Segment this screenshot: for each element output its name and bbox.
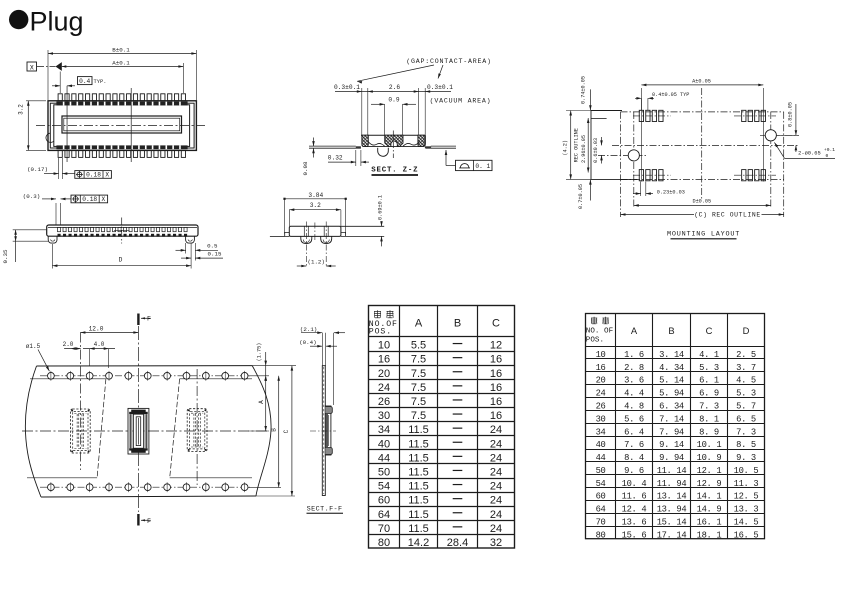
svg-text:10: 10 xyxy=(596,350,606,360)
svg-text:14. 1: 14. 1 xyxy=(697,492,722,502)
svg-text:(VACUUM AREA): (VACUUM AREA) xyxy=(430,98,492,105)
svg-text:6. 5: 6. 5 xyxy=(736,414,756,424)
svg-text:B±0.1: B±0.1 xyxy=(112,46,130,53)
svg-text:7.5: 7.5 xyxy=(411,368,426,380)
svg-text:5. 94: 5. 94 xyxy=(659,389,684,399)
svg-text:10. 1: 10. 1 xyxy=(697,440,722,450)
svg-text:34: 34 xyxy=(596,427,606,437)
svg-text:6. 34: 6. 34 xyxy=(659,402,684,412)
svg-text:24: 24 xyxy=(490,424,502,436)
svg-text:20: 20 xyxy=(378,368,390,380)
svg-text:(0.4): (0.4) xyxy=(299,339,316,346)
svg-text:0. 1: 0. 1 xyxy=(475,163,490,170)
svg-text:0.4±0.05 TYP: 0.4±0.05 TYP xyxy=(652,92,689,98)
svg-text:A±0.05: A±0.05 xyxy=(692,79,711,85)
svg-text:64: 64 xyxy=(596,505,606,515)
svg-text:3.2: 3.2 xyxy=(310,202,321,209)
svg-text:X: X xyxy=(105,172,109,179)
svg-text:0.5: 0.5 xyxy=(207,243,218,250)
svg-text:24: 24 xyxy=(596,389,606,399)
svg-text:D±0.05: D±0.05 xyxy=(692,199,711,205)
svg-text:24: 24 xyxy=(490,481,502,493)
svg-text:28.4: 28.4 xyxy=(447,537,468,549)
svg-text:11. 14: 11. 14 xyxy=(657,466,687,476)
svg-text:A: A xyxy=(258,400,265,404)
svg-text:3. 6: 3. 6 xyxy=(624,376,644,386)
svg-text:SECT.F-F: SECT.F-F xyxy=(307,505,343,513)
svg-text:11.5: 11.5 xyxy=(408,438,429,450)
svg-text:(1.2): (1.2) xyxy=(307,258,324,265)
svg-text:11.5: 11.5 xyxy=(408,424,429,436)
svg-text:8. 9: 8. 9 xyxy=(699,427,719,437)
svg-text:60: 60 xyxy=(378,495,390,507)
svg-text:26: 26 xyxy=(596,402,606,412)
svg-text:16: 16 xyxy=(490,396,502,408)
svg-text:3. 14: 3. 14 xyxy=(659,350,684,360)
svg-text:0.23±0.03: 0.23±0.03 xyxy=(657,190,685,196)
svg-text:7. 14: 7. 14 xyxy=(659,414,684,424)
svg-text:0.4: 0.4 xyxy=(79,78,90,85)
svg-text:A: A xyxy=(415,317,423,329)
svg-text:0.18: 0.18 xyxy=(86,172,101,179)
svg-text:0.7±0.05: 0.7±0.05 xyxy=(578,184,584,209)
svg-text:6. 1: 6. 1 xyxy=(699,376,719,386)
svg-text:0.8±0.05: 0.8±0.05 xyxy=(787,102,793,127)
svg-text:10. 9: 10. 9 xyxy=(697,453,722,463)
svg-text:4.0: 4.0 xyxy=(94,341,105,348)
svg-text:24: 24 xyxy=(378,382,390,394)
svg-text:14. 9: 14. 9 xyxy=(697,505,722,515)
svg-text:11.5: 11.5 xyxy=(408,523,429,535)
svg-text:54: 54 xyxy=(596,479,606,489)
svg-text:16: 16 xyxy=(490,368,502,380)
svg-text:11.5: 11.5 xyxy=(408,452,429,464)
svg-text:5.5: 5.5 xyxy=(411,340,426,352)
svg-text:12. 4: 12. 4 xyxy=(622,505,647,515)
svg-text:34: 34 xyxy=(378,424,390,436)
svg-text:(C) REC OUTLINE: (C) REC OUTLINE xyxy=(694,212,761,219)
svg-text:NO. OF: NO. OF xyxy=(586,328,614,336)
svg-text:32: 32 xyxy=(490,537,502,549)
svg-text:16. 5: 16. 5 xyxy=(734,530,759,540)
svg-text:12: 12 xyxy=(490,340,502,352)
svg-text:16: 16 xyxy=(378,354,390,366)
svg-text:6. 9: 6. 9 xyxy=(699,389,719,399)
svg-text:13. 14: 13. 14 xyxy=(657,492,687,502)
svg-text:60: 60 xyxy=(596,492,606,502)
svg-text:4. 4: 4. 4 xyxy=(624,389,644,399)
svg-text:Plug: Plug xyxy=(30,6,84,36)
svg-text:2.6: 2.6 xyxy=(389,84,400,91)
svg-text:24: 24 xyxy=(490,523,502,535)
svg-text:C: C xyxy=(283,429,290,433)
svg-text:0.15: 0.15 xyxy=(208,251,222,258)
svg-text:7. 3: 7. 3 xyxy=(699,402,719,412)
svg-text:0.9: 0.9 xyxy=(388,97,399,104)
svg-text:11. 6: 11. 6 xyxy=(622,492,647,502)
svg-text:0.6±0.03: 0.6±0.03 xyxy=(593,138,599,163)
svg-text:2. 8: 2. 8 xyxy=(624,363,644,373)
svg-text:40: 40 xyxy=(378,438,390,450)
svg-text:50: 50 xyxy=(596,466,606,476)
svg-text:C: C xyxy=(492,317,500,329)
svg-text:54: 54 xyxy=(378,481,390,493)
svg-text:24: 24 xyxy=(490,509,502,521)
svg-text:(4.2): (4.2) xyxy=(562,140,568,156)
svg-text:70: 70 xyxy=(378,523,390,535)
svg-text:C: C xyxy=(706,325,713,336)
svg-text:15. 14: 15. 14 xyxy=(657,517,687,527)
svg-text:2-ø0.65: 2-ø0.65 xyxy=(798,151,821,157)
svg-text:13. 94: 13. 94 xyxy=(657,505,687,515)
svg-text:9. 6: 9. 6 xyxy=(624,466,644,476)
svg-text:70: 70 xyxy=(596,517,606,527)
svg-text:F: F xyxy=(147,316,151,323)
svg-text:7. 3: 7. 3 xyxy=(736,427,756,437)
svg-text:11.5: 11.5 xyxy=(408,495,429,507)
svg-text:8. 1: 8. 1 xyxy=(699,414,719,424)
svg-text:D: D xyxy=(743,325,750,336)
svg-text:10. 5: 10. 5 xyxy=(734,466,759,476)
svg-text:(1.75): (1.75) xyxy=(257,343,263,362)
svg-text:44: 44 xyxy=(596,453,606,463)
svg-text:16: 16 xyxy=(490,354,502,366)
svg-text:16: 16 xyxy=(596,363,606,373)
svg-text:0.08: 0.08 xyxy=(302,161,309,175)
svg-text:4. 5: 4. 5 xyxy=(736,376,756,386)
svg-text:TYP.: TYP. xyxy=(94,79,107,85)
svg-text:9. 94: 9. 94 xyxy=(659,453,684,463)
svg-text:16. 1: 16. 1 xyxy=(697,517,722,527)
svg-text:7. 94: 7. 94 xyxy=(659,427,684,437)
svg-text:(0.3): (0.3) xyxy=(23,193,40,200)
svg-text:5. 3: 5. 3 xyxy=(699,363,719,373)
svg-text:24: 24 xyxy=(490,452,502,464)
svg-text:A±0.1: A±0.1 xyxy=(112,59,130,66)
svg-text:7.5: 7.5 xyxy=(411,396,426,408)
svg-text:80: 80 xyxy=(596,530,606,540)
svg-text:14. 5: 14. 5 xyxy=(734,517,759,527)
svg-text:(GAP:CONTACT-AREA): (GAP:CONTACT-AREA) xyxy=(406,58,492,65)
svg-text:4. 34: 4. 34 xyxy=(659,363,684,373)
svg-text:B: B xyxy=(454,317,461,329)
svg-text:(2.1): (2.1) xyxy=(300,326,317,333)
svg-text:7. 6: 7. 6 xyxy=(624,440,644,450)
svg-text:(0.17): (0.17) xyxy=(27,166,48,173)
svg-text:12. 5: 12. 5 xyxy=(734,492,759,502)
svg-text:24: 24 xyxy=(490,438,502,450)
svg-text:50: 50 xyxy=(378,467,390,479)
svg-text:2. 5: 2. 5 xyxy=(736,350,756,360)
svg-text:7.5: 7.5 xyxy=(411,382,426,394)
svg-text:3. 7: 3. 7 xyxy=(736,363,756,373)
svg-text:44: 44 xyxy=(378,452,390,464)
svg-text:12. 9: 12. 9 xyxy=(697,479,722,489)
svg-text:3.2: 3.2 xyxy=(18,104,25,115)
svg-text:B: B xyxy=(270,428,277,432)
svg-text:11.5: 11.5 xyxy=(408,467,429,479)
svg-text:5. 3: 5. 3 xyxy=(736,389,756,399)
svg-text:8. 5: 8. 5 xyxy=(736,440,756,450)
svg-text:30: 30 xyxy=(378,410,390,422)
svg-text:15. 6: 15. 6 xyxy=(622,530,647,540)
svg-text:11. 3: 11. 3 xyxy=(734,479,759,489)
svg-text:9. 14: 9. 14 xyxy=(659,440,684,450)
svg-text:REC OUTLINE: REC OUTLINE xyxy=(574,128,580,162)
svg-text:0.3±0.1: 0.3±0.1 xyxy=(334,84,360,91)
svg-text:5. 14: 5. 14 xyxy=(659,376,684,386)
svg-text:10. 4: 10. 4 xyxy=(622,479,647,489)
svg-text:0.74±0.05: 0.74±0.05 xyxy=(581,76,587,104)
svg-text:24: 24 xyxy=(490,467,502,479)
svg-text:8. 4: 8. 4 xyxy=(624,453,644,463)
svg-text:40: 40 xyxy=(596,440,606,450)
svg-text:13. 3: 13. 3 xyxy=(734,505,759,515)
svg-text:16: 16 xyxy=(490,382,502,394)
svg-text:X: X xyxy=(30,64,34,71)
svg-text:12. 1: 12. 1 xyxy=(697,466,722,476)
svg-text:13. 6: 13. 6 xyxy=(622,517,647,527)
svg-text:64: 64 xyxy=(378,509,390,521)
svg-text:B: B xyxy=(668,325,674,336)
svg-text:20: 20 xyxy=(596,376,606,386)
svg-text:11.5: 11.5 xyxy=(408,481,429,493)
svg-text:7.5: 7.5 xyxy=(411,410,426,422)
svg-text:SECT. Z-Z: SECT. Z-Z xyxy=(371,167,418,175)
svg-text:24: 24 xyxy=(490,495,502,507)
svg-text:4. 1: 4. 1 xyxy=(699,350,719,360)
svg-text:POS.: POS. xyxy=(586,336,604,344)
svg-text:5. 7: 5. 7 xyxy=(736,402,756,412)
svg-text:14.2: 14.2 xyxy=(408,537,429,549)
svg-text:5. 6: 5. 6 xyxy=(624,414,644,424)
svg-text:30: 30 xyxy=(596,414,606,424)
svg-text:0.18: 0.18 xyxy=(82,196,97,203)
svg-text:9. 3: 9. 3 xyxy=(736,453,756,463)
svg-text:80: 80 xyxy=(378,537,390,549)
svg-text:F: F xyxy=(147,518,151,525)
svg-text:26: 26 xyxy=(378,396,390,408)
svg-text:1. 6: 1. 6 xyxy=(624,350,644,360)
svg-text:6. 4: 6. 4 xyxy=(624,427,644,437)
svg-text:A: A xyxy=(631,325,638,336)
svg-text:16: 16 xyxy=(490,410,502,422)
svg-text:+0.1: +0.1 xyxy=(824,147,835,153)
svg-text:0: 0 xyxy=(826,153,829,159)
svg-text:D: D xyxy=(119,257,123,264)
svg-text:2.96±0.05: 2.96±0.05 xyxy=(581,135,587,163)
svg-text:7.5: 7.5 xyxy=(411,354,426,366)
svg-text:0.32: 0.32 xyxy=(328,154,343,161)
svg-text:0.3±0.1: 0.3±0.1 xyxy=(427,84,453,91)
svg-text:3.84: 3.84 xyxy=(308,192,323,199)
svg-text:2.0: 2.0 xyxy=(63,341,74,348)
svg-text:12.0: 12.0 xyxy=(89,326,104,333)
svg-text:X: X xyxy=(102,196,106,203)
svg-text:11. 94: 11. 94 xyxy=(657,479,687,489)
svg-text:0.69±0.1: 0.69±0.1 xyxy=(377,195,383,220)
svg-text:17. 14: 17. 14 xyxy=(657,530,687,540)
svg-text:ø1.5: ø1.5 xyxy=(26,343,41,350)
svg-text:11.5: 11.5 xyxy=(408,509,429,521)
svg-text:MOUNTING LAYOUT: MOUNTING LAYOUT xyxy=(667,231,740,239)
svg-text:POS.: POS. xyxy=(369,328,392,337)
svg-text:4. 8: 4. 8 xyxy=(624,402,644,412)
svg-text:18. 1: 18. 1 xyxy=(697,530,722,540)
svg-text:10: 10 xyxy=(378,340,390,352)
svg-text:0.35: 0.35 xyxy=(2,249,9,263)
